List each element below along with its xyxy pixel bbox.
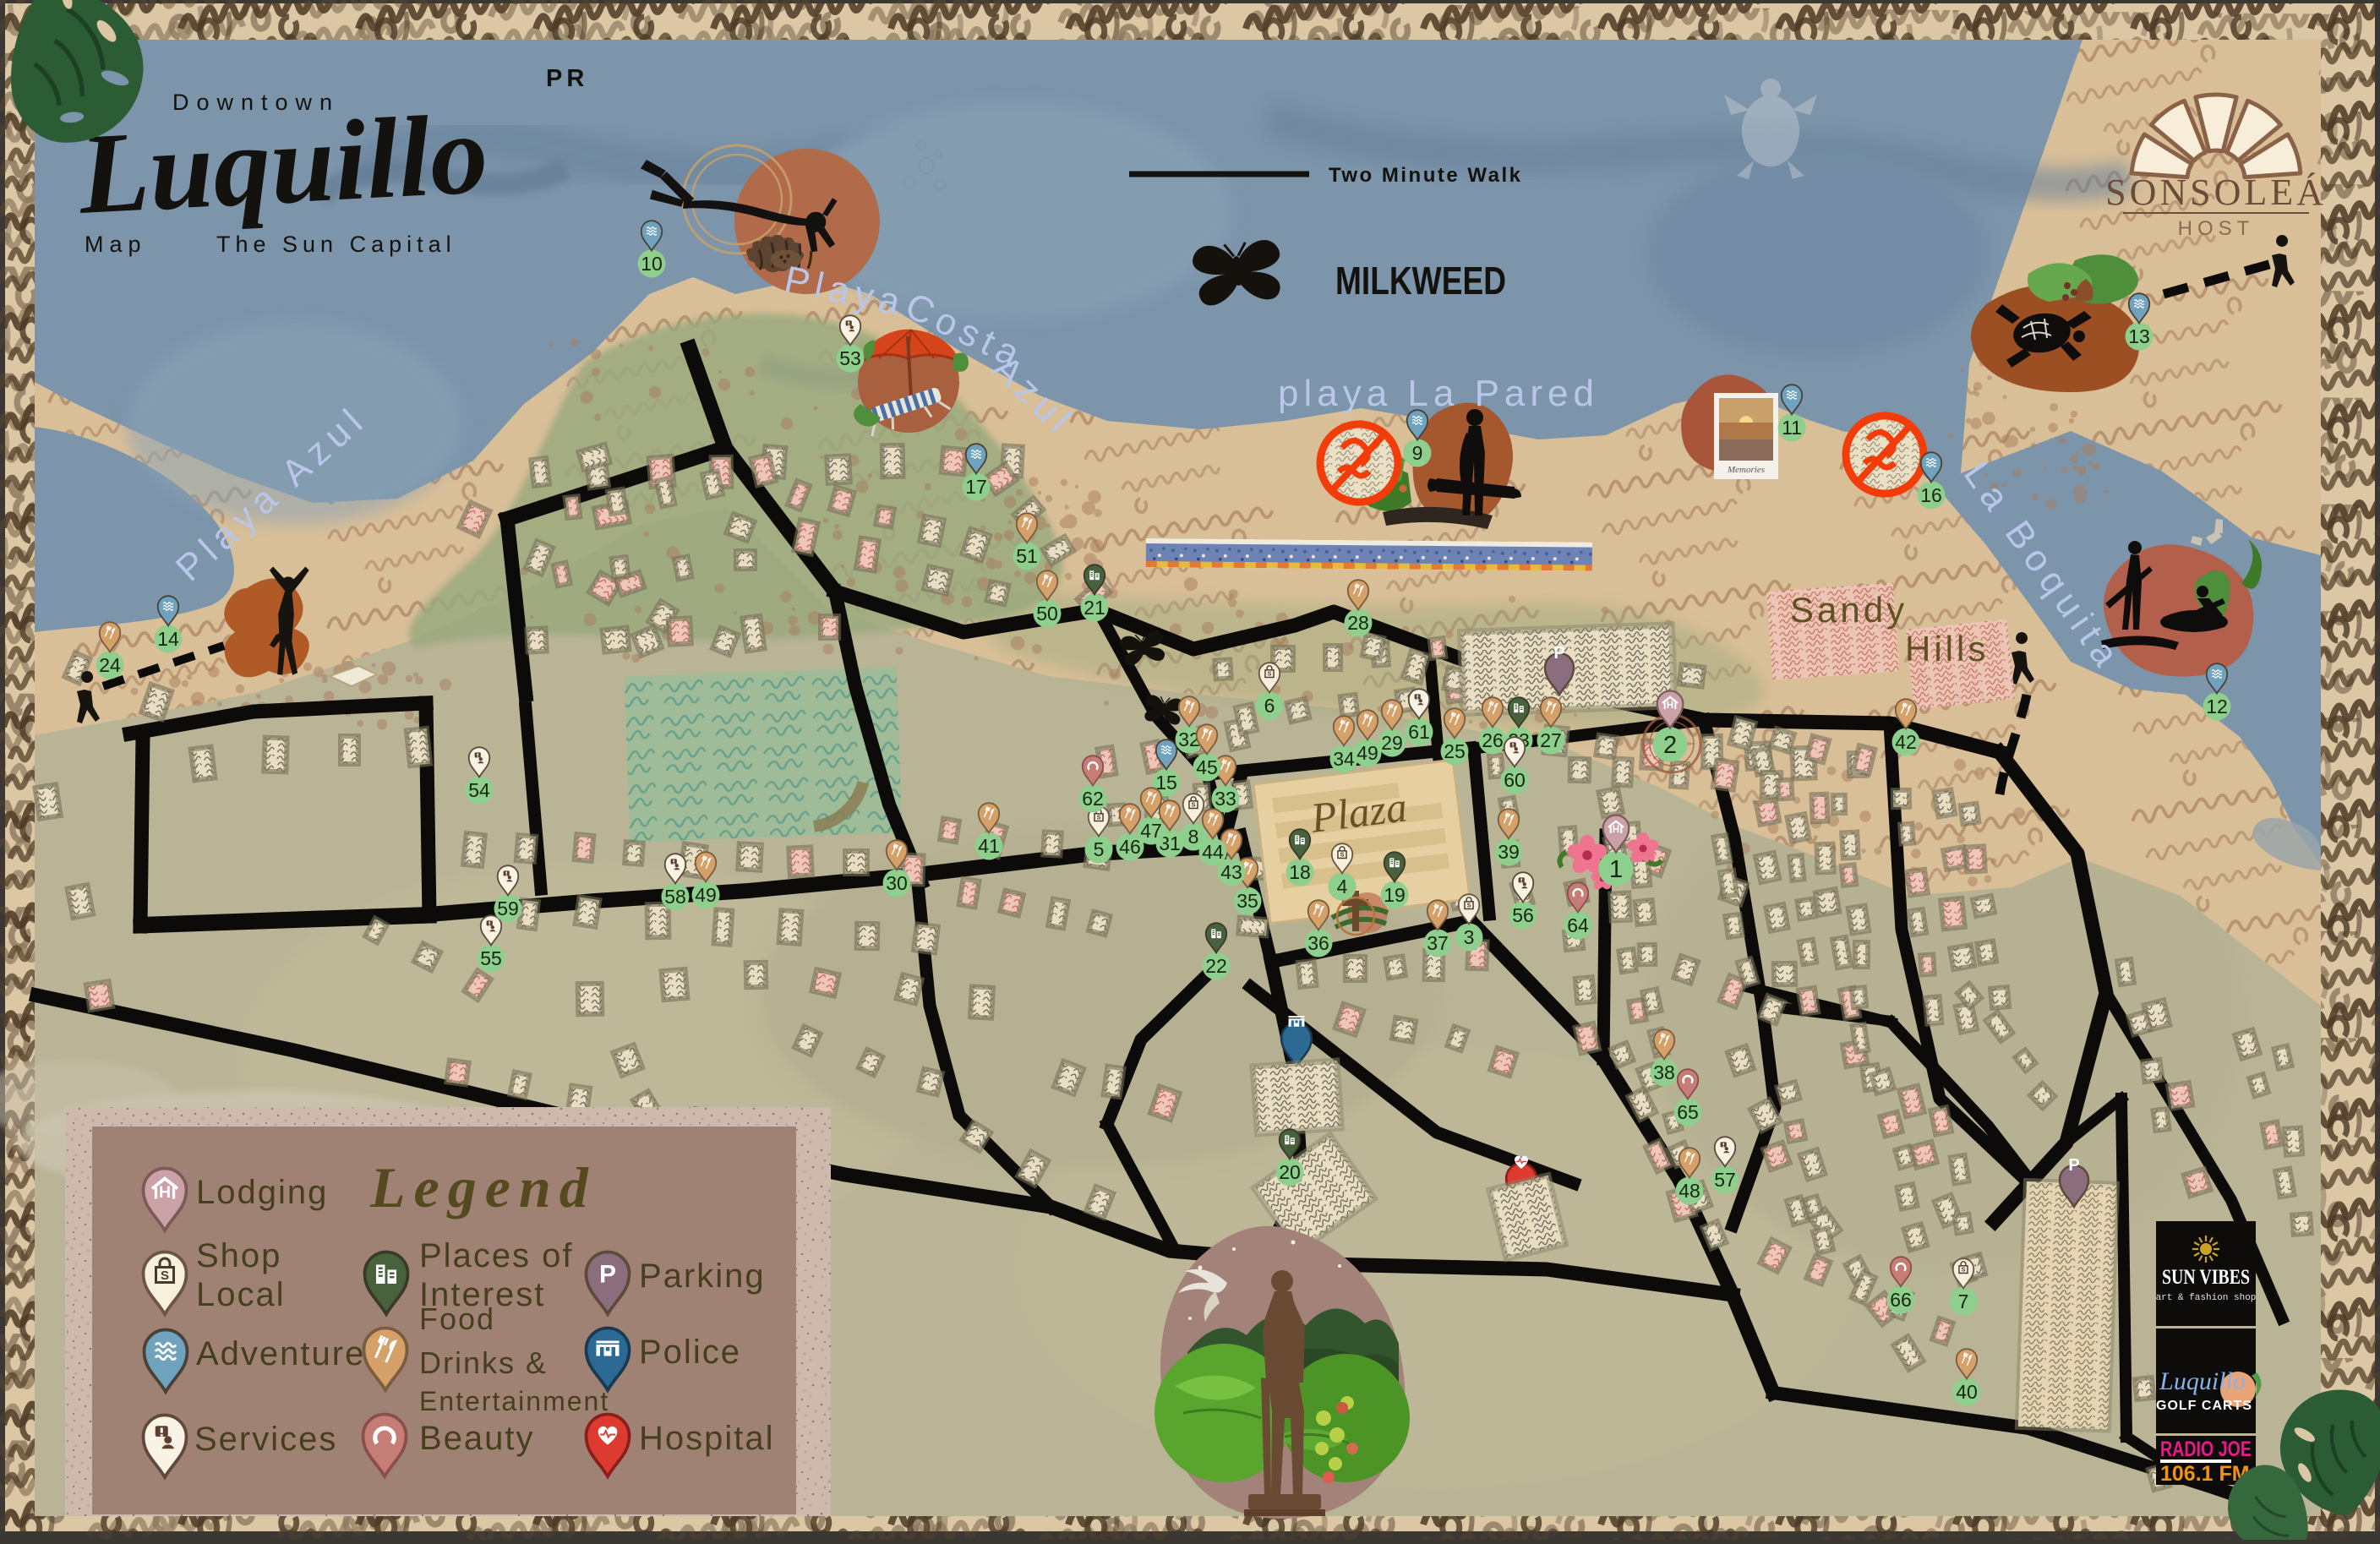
svg-text:53: 53 [839, 347, 861, 369]
svg-text:HOST: HOST [2178, 217, 2255, 240]
svg-text:19: 19 [1384, 884, 1406, 906]
svg-text:46: 46 [1119, 836, 1141, 858]
svg-text:SONSOLEÁ: SONSOLEÁ [2105, 172, 2327, 213]
svg-text:20: 20 [1279, 1161, 1301, 1183]
svg-text:39: 39 [1498, 841, 1520, 863]
svg-text:48: 48 [1679, 1180, 1700, 1202]
svg-text:38: 38 [1653, 1061, 1675, 1083]
svg-text:S: S [1467, 902, 1471, 909]
svg-text:Entertainment: Entertainment [419, 1386, 609, 1416]
svg-text:14: 14 [157, 628, 179, 650]
svg-text:P: P [599, 1261, 616, 1289]
svg-text:36: 36 [1307, 932, 1329, 954]
svg-text:6: 6 [1264, 695, 1275, 717]
svg-text:MILKWEED: MILKWEED [1335, 259, 1506, 303]
svg-text:Luquillo: Luquillo [2159, 1367, 2246, 1395]
svg-text:2: 2 [1663, 732, 1677, 759]
svg-text:Food: Food [419, 1301, 495, 1336]
svg-text:28: 28 [1347, 612, 1369, 634]
svg-text:GOLF CARTS: GOLF CARTS [2156, 1399, 2252, 1413]
svg-text:62: 62 [1082, 788, 1104, 810]
svg-text:41: 41 [978, 835, 1000, 857]
svg-text:12: 12 [2206, 696, 2228, 717]
svg-text:11: 11 [1782, 417, 1802, 439]
svg-text:65: 65 [1677, 1101, 1699, 1123]
svg-text:Beauty: Beauty [419, 1420, 535, 1457]
svg-text:47: 47 [1140, 820, 1162, 842]
svg-text:S: S [1268, 670, 1272, 678]
svg-text:50: 50 [1036, 603, 1058, 625]
svg-text:H: H [1667, 700, 1673, 711]
svg-text:55: 55 [480, 947, 502, 969]
svg-text:SUN VIBES: SUN VIBES [2162, 1266, 2250, 1289]
svg-text:P: P [1553, 644, 1564, 663]
svg-text:49: 49 [1356, 742, 1378, 764]
svg-text:49: 49 [695, 884, 717, 906]
svg-text:27: 27 [1540, 729, 1562, 751]
svg-text:Local: Local [196, 1276, 286, 1313]
svg-text:30: 30 [886, 872, 908, 894]
svg-text:64: 64 [1567, 914, 1589, 936]
svg-text:43: 43 [1220, 861, 1242, 883]
svg-text:S: S [1192, 801, 1196, 809]
svg-text:9: 9 [1412, 442, 1423, 464]
svg-text:16: 16 [1920, 484, 1942, 506]
svg-text:22: 22 [1205, 955, 1227, 977]
svg-text:RADIO JOE: RADIO JOE [2160, 1438, 2252, 1461]
svg-text:37: 37 [1427, 932, 1449, 954]
svg-text:54: 54 [468, 779, 490, 801]
svg-text:Hospital: Hospital [639, 1420, 775, 1457]
svg-text:H: H [159, 1183, 171, 1202]
svg-text:51: 51 [1016, 545, 1038, 567]
svg-text:Sandy: Sandy [1790, 590, 1908, 630]
svg-text:Hills: Hills [1905, 629, 1989, 668]
svg-text:34: 34 [1333, 748, 1355, 770]
svg-text:66: 66 [1890, 1289, 1912, 1311]
svg-text:8: 8 [1188, 826, 1199, 848]
svg-text:40: 40 [1956, 1381, 1978, 1403]
svg-text:S: S [161, 1268, 169, 1283]
svg-text:24: 24 [99, 654, 121, 676]
svg-text:59: 59 [497, 897, 519, 919]
svg-text:57: 57 [1714, 1169, 1736, 1191]
svg-text:7: 7 [1958, 1290, 1969, 1312]
svg-text:42: 42 [1895, 731, 1917, 753]
svg-text:Memories: Memories [1727, 465, 1765, 475]
svg-text:S: S [1962, 1266, 1966, 1274]
svg-text:Drinks &: Drinks & [419, 1345, 548, 1380]
svg-text:33: 33 [1215, 788, 1236, 810]
svg-text:29: 29 [1381, 732, 1403, 754]
svg-text:5: 5 [1094, 838, 1105, 860]
svg-text:Police: Police [639, 1334, 741, 1371]
svg-text:S: S [1340, 851, 1345, 859]
svg-text:Places of: Places of [419, 1237, 574, 1274]
svg-text:Luquillo: Luquillo [75, 90, 491, 238]
svg-text:The Sun Capital: The Sun Capital [216, 232, 456, 257]
svg-text:45: 45 [1196, 756, 1218, 778]
svg-text:art & fashion shop: art & fashion shop [2156, 1293, 2257, 1303]
svg-text:21: 21 [1084, 597, 1105, 619]
svg-text:25: 25 [1444, 740, 1466, 762]
svg-text:60: 60 [1504, 769, 1526, 791]
svg-text:S: S [1097, 814, 1101, 821]
svg-text:Adventure: Adventure [196, 1335, 365, 1372]
svg-text:13: 13 [2128, 325, 2150, 347]
svg-text:17: 17 [965, 476, 987, 498]
svg-text:PR: PR [546, 65, 588, 92]
svg-text:Lodging: Lodging [196, 1174, 328, 1211]
svg-text:Services: Services [194, 1421, 337, 1458]
svg-text:4: 4 [1337, 876, 1348, 897]
svg-text:56: 56 [1512, 904, 1534, 926]
svg-text:Two Minute Walk: Two Minute Walk [1329, 164, 1523, 187]
svg-text:Legend: Legend [369, 1155, 597, 1219]
svg-text:H: H [1613, 824, 1619, 835]
svg-text:Map: Map [85, 232, 147, 257]
svg-text:P: P [2068, 1156, 2079, 1175]
svg-text:3: 3 [1464, 926, 1475, 948]
svg-text:61: 61 [1408, 721, 1430, 743]
svg-text:Shop: Shop [196, 1237, 281, 1274]
svg-text:26: 26 [1482, 729, 1504, 751]
svg-text:10: 10 [641, 253, 663, 275]
svg-text:35: 35 [1236, 890, 1258, 912]
svg-text:Parking: Parking [639, 1258, 766, 1295]
svg-text:1: 1 [1609, 856, 1623, 883]
svg-text:18: 18 [1289, 861, 1311, 883]
svg-text:playa La Pared: playa La Pared [1278, 373, 1599, 414]
svg-text:44: 44 [1202, 841, 1224, 863]
svg-text:58: 58 [664, 886, 686, 908]
